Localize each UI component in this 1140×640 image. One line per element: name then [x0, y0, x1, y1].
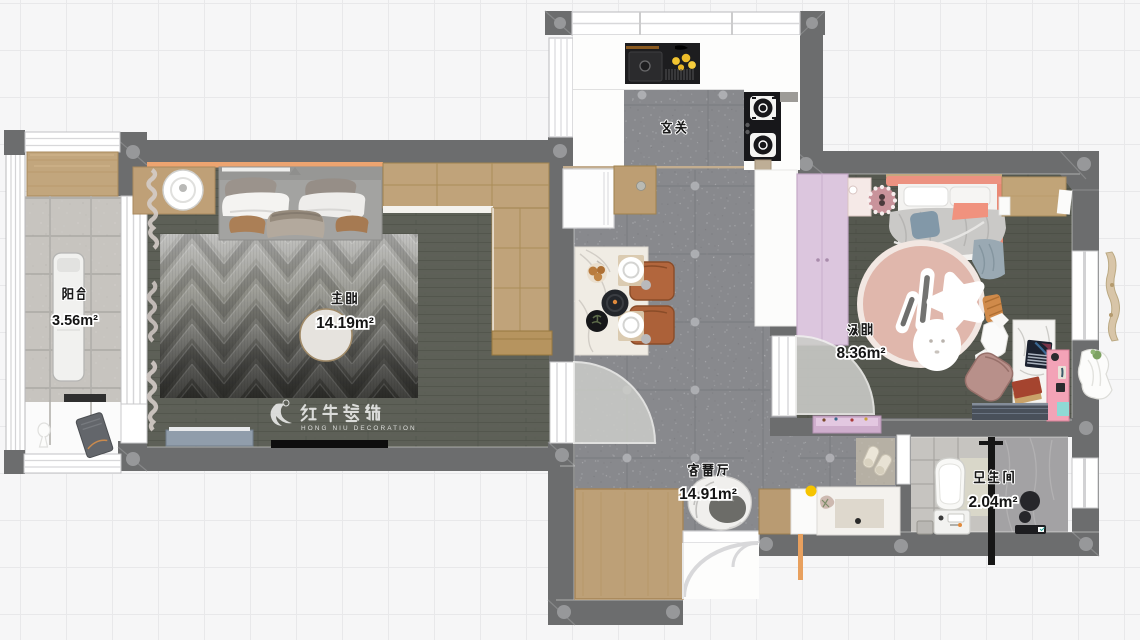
- svg-text:8.36m²: 8.36m²: [836, 345, 885, 362]
- svg-text:14.19m²: 14.19m²: [316, 315, 374, 332]
- svg-text:3.56m²: 3.56m²: [52, 313, 98, 329]
- svg-text:HONG NIU DECORATION: HONG NIU DECORATION: [301, 425, 417, 432]
- svg-text:14.91m²: 14.91m²: [679, 486, 737, 503]
- svg-text:2.04m²: 2.04m²: [968, 494, 1017, 511]
